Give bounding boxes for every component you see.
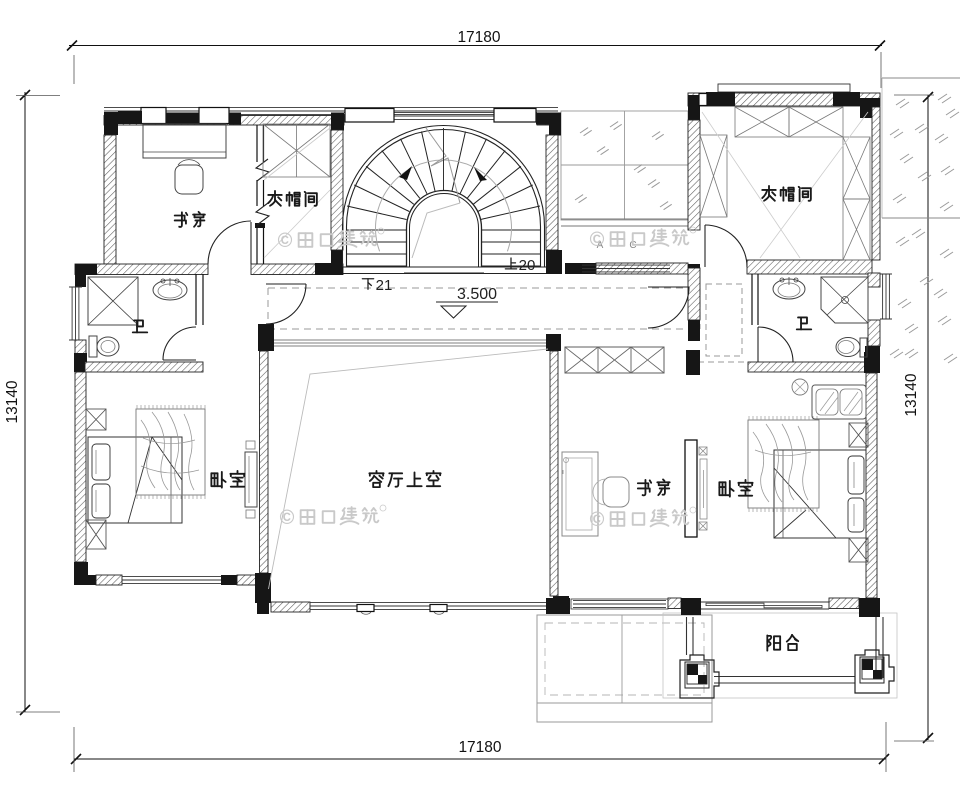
svg-text:3.500: 3.500: [457, 286, 497, 303]
svg-text:20: 20: [519, 257, 536, 274]
svg-text:©: ©: [278, 230, 293, 252]
svg-text:©: ©: [590, 509, 605, 531]
svg-text:17180: 17180: [458, 739, 501, 756]
svg-text:©: ©: [590, 229, 605, 251]
svg-text:13140: 13140: [4, 380, 21, 423]
svg-text:13140: 13140: [903, 373, 920, 416]
svg-text:21: 21: [376, 277, 393, 294]
svg-text:©: ©: [280, 507, 295, 529]
svg-text:17180: 17180: [457, 29, 500, 46]
